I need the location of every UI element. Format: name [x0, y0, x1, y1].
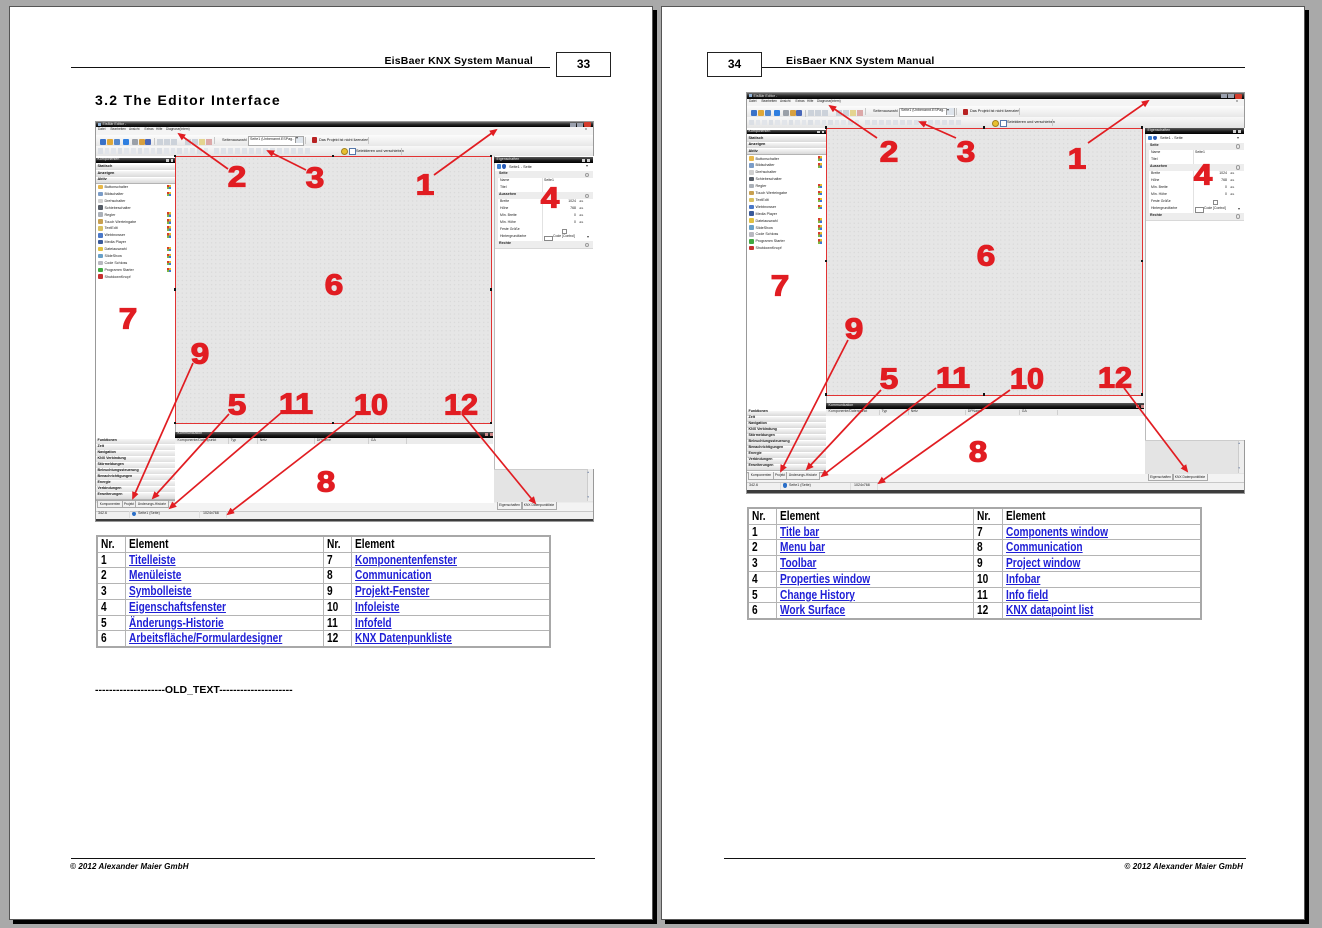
svg-text:3: 3	[306, 163, 325, 195]
svg-text:9: 9	[191, 339, 210, 371]
svg-text:6: 6	[325, 270, 344, 302]
svg-text:11: 11	[936, 363, 970, 395]
svg-text:9: 9	[845, 314, 864, 346]
svg-text:5: 5	[880, 364, 899, 396]
svg-text:10: 10	[354, 390, 388, 422]
svg-text:4: 4	[541, 183, 560, 215]
svg-text:11: 11	[279, 389, 313, 421]
svg-text:7: 7	[771, 271, 790, 303]
svg-text:6: 6	[977, 241, 996, 273]
svg-text:7: 7	[119, 304, 138, 336]
svg-text:1: 1	[1068, 144, 1087, 176]
svg-text:2: 2	[228, 162, 247, 194]
svg-text:8: 8	[969, 437, 988, 469]
svg-text:1: 1	[416, 170, 435, 202]
svg-text:8: 8	[317, 467, 336, 499]
svg-text:5: 5	[228, 390, 247, 422]
svg-text:10: 10	[1010, 364, 1044, 396]
svg-text:2: 2	[880, 137, 899, 169]
svg-text:12: 12	[1098, 363, 1132, 395]
svg-text:3: 3	[957, 137, 976, 169]
svg-text:12: 12	[444, 390, 478, 422]
svg-text:4: 4	[1194, 160, 1213, 192]
